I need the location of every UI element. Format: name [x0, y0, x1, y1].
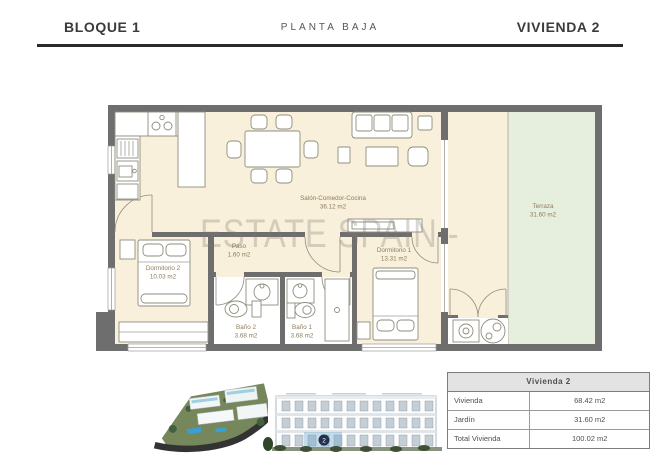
svg-text:1.60 m2: 1.60 m2: [228, 252, 251, 259]
unit-marker-number: 2: [322, 438, 326, 445]
header-rule: [37, 44, 623, 47]
utility-appliances: [453, 319, 505, 343]
row-value: 31.60 m2: [530, 411, 649, 429]
garden-floor: [508, 112, 595, 344]
room-label-paso: Paso: [232, 243, 247, 250]
room-label-dormitorio-1: Dormitorio 1: [377, 247, 412, 254]
room-label-salon: Salón-Comedor-Cocina: [300, 195, 366, 202]
svg-text:36.12 m2: 36.12 m2: [320, 204, 347, 211]
coffee-table: [366, 147, 398, 166]
svg-text:3.68 m2: 3.68 m2: [235, 333, 258, 340]
row-value: 68.42 m2: [530, 392, 649, 410]
svg-text:3.68 m2: 3.68 m2: [291, 333, 314, 340]
room-label-bano-1: Baño 1: [292, 324, 312, 331]
table-row: Total Vivienda 100.02 m2: [448, 430, 649, 448]
dining-table: [245, 131, 300, 167]
room-label-terraza: Terraza: [533, 203, 554, 210]
row-label: Total Vivienda: [448, 430, 530, 448]
area-table: Vivienda 2 Vivienda 68.42 m2 Jardín 31.6…: [447, 372, 650, 449]
row-label: Jardín: [448, 411, 530, 429]
glazed-wall: [441, 112, 448, 344]
appliance: [117, 184, 138, 199]
row-value: 100.02 m2: [530, 430, 649, 448]
toilet-tank: [287, 303, 295, 318]
nightstand: [120, 240, 135, 259]
aerial-render-image: [142, 380, 268, 460]
header-unit-label: VIVIENDA 2: [517, 19, 600, 35]
boiler: [481, 319, 505, 343]
table-row: Vivienda 68.42 m2: [448, 392, 649, 411]
room-label-bano-2: Baño 2: [236, 324, 256, 331]
elevation-drawing: 2: [262, 386, 450, 462]
room-label-dormitorio-2: Dormitorio 2: [146, 265, 181, 272]
toilet-tank: [252, 301, 261, 317]
row-label: Vivienda: [448, 392, 530, 410]
svg-text:10.03 m2: 10.03 m2: [150, 274, 177, 281]
armchair: [408, 147, 428, 166]
svg-text:31.60 m2: 31.60 m2: [530, 212, 557, 219]
side-table: [418, 116, 432, 130]
kitchen-peninsula: [178, 112, 205, 187]
side-table: [338, 147, 350, 163]
tree: [263, 437, 273, 451]
floor-plan: Salón-Comedor-Cocina 36.12 m2 Paso 1.60 …: [95, 98, 610, 358]
area-table-title: Vivienda 2: [448, 373, 649, 392]
brochure-page: BLOQUE 1 PLANTA BAJA VIVIENDA 2: [0, 0, 660, 467]
table-row: Jardín 31.60 m2: [448, 411, 649, 430]
nightstand: [357, 322, 370, 339]
svg-text:13.31 m2: 13.31 m2: [381, 256, 408, 263]
dish-rack: [117, 139, 138, 158]
